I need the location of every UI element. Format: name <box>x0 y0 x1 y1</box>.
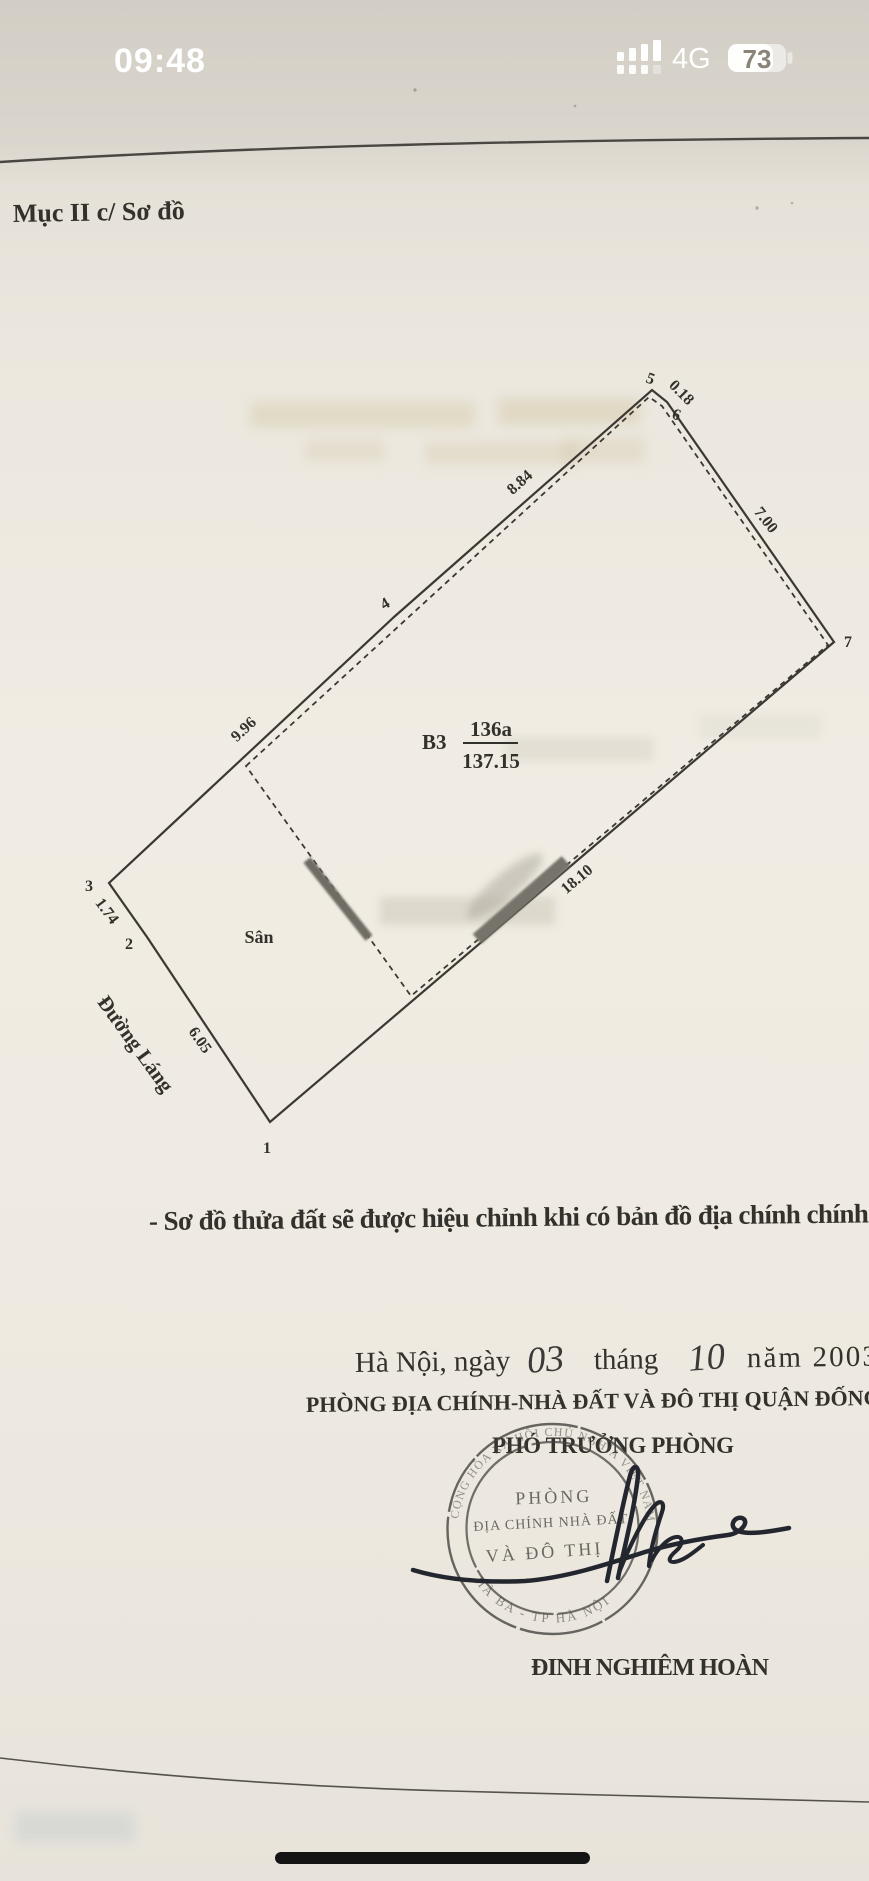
svg-text:09:48: 09:48 <box>114 42 206 80</box>
svg-text:7: 7 <box>844 634 852 651</box>
svg-text:tháng: tháng <box>594 1343 659 1376</box>
svg-text:10: 10 <box>686 1336 727 1380</box>
svg-text:Sân: Sân <box>244 927 273 947</box>
svg-text:4G: 4G <box>672 43 711 75</box>
svg-text:73: 73 <box>743 44 772 74</box>
svg-text:136a: 136a <box>470 717 513 741</box>
svg-text:Mục II c/ Sơ đồ: Mục II c/ Sơ đồ <box>13 196 185 228</box>
svg-text:ĐINH NGHIÊM HOÀN: ĐINH NGHIÊM HOÀN <box>531 1654 770 1681</box>
svg-text:137.15: 137.15 <box>462 749 520 773</box>
svg-text:Hà Nội, ngày: Hà Nội, ngày <box>355 1345 511 1379</box>
svg-text:B3: B3 <box>422 730 447 754</box>
svg-text:1: 1 <box>263 1140 271 1157</box>
svg-text:3: 3 <box>85 878 93 895</box>
svg-text:PHÒNG: PHÒNG <box>515 1485 593 1509</box>
svg-text:03: 03 <box>525 1338 565 1382</box>
svg-text:năm 2003: năm 2003 <box>747 1341 869 1375</box>
svg-text:2: 2 <box>125 936 133 953</box>
